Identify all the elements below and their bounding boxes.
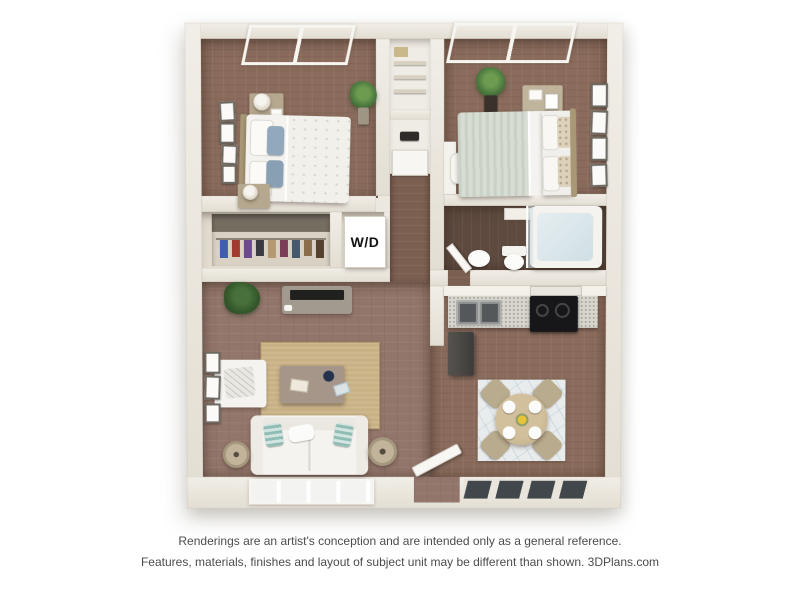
picture-frame [222,165,237,184]
wall-bedroom2-left [430,39,444,270]
tv [290,290,344,300]
closet-shelf [394,61,426,65]
wall-left [185,23,203,509]
dining-window-frame [464,479,589,501]
floor-lamp [223,441,250,468]
bed [457,108,577,198]
floor-plan: W/D [185,23,624,509]
table-centerpiece [518,415,527,424]
picture-frame [205,403,221,423]
sofa-arm [251,415,263,474]
refrigerator [448,332,474,376]
sofa-pillow-teal [263,422,284,447]
corner-plant [224,282,260,314]
table-lamp [253,93,270,110]
picture-frame [219,101,236,122]
picture-frame [221,144,238,165]
shower-glass [526,206,533,268]
burner [555,303,570,318]
hanging-clothes [256,240,264,256]
page: W/D Renderings are an artist's conceptio… [0,0,800,600]
wall-closet-bottom [202,268,390,282]
disclaimer-line1: Renderings are an artist's conception an… [0,531,800,552]
sink-basin [458,302,478,324]
burner [536,304,549,317]
duvet [457,111,530,197]
bathtub-basin [537,213,593,261]
shelf-object [400,132,419,141]
duvet [285,115,351,203]
bathroom-sink [468,250,490,267]
plant-pot [358,107,369,124]
picture-frame [590,110,608,135]
console-decor [284,305,292,311]
entry-doorway-floor [414,477,460,503]
picture-frame [204,352,220,374]
armchair-pillow [223,366,256,399]
nightstand-decor [545,93,559,109]
dining-window-dark-panes [464,481,589,499]
hanging-clothes [220,240,228,258]
table-book [290,378,309,392]
wall-niche-divider [390,109,430,119]
bedroom-2-window [446,23,577,63]
closet [212,214,330,266]
wall-bedroom1-right [376,39,390,196]
hanging-clothes [268,240,276,258]
sink-basin [480,302,500,324]
plate [528,426,541,439]
closet-shelf-box [394,47,408,57]
hanging-clothes [304,240,312,256]
picture-frame [204,375,221,399]
table-vase [323,371,334,382]
wall-kitchen-stub [430,286,444,346]
hallway-floor [390,174,430,282]
hanging-clothes [280,240,288,257]
plate [529,401,542,414]
sofa-arm [356,415,368,474]
bedroom-1-window [241,25,356,65]
picture-frame [591,83,608,107]
floor-lamp [368,437,397,466]
closet-shelf [394,75,426,79]
hanging-clothes [232,240,240,257]
picture-frame [590,137,607,161]
living-room-window [249,479,374,505]
headboard [570,108,577,197]
washer-dryer-box: W/D [344,216,386,268]
picture-frame [219,123,235,144]
potted-plant [476,67,505,96]
wall-bathroom-bottom-left [430,270,448,286]
plate [503,426,516,439]
hanging-clothes [316,240,324,258]
potted-plant [350,81,377,108]
closet-shelf [394,89,426,93]
range-hood [530,286,582,296]
plate [503,401,516,414]
accent-pillow [267,126,285,156]
hanging-clothes [292,240,300,258]
hallway-door [392,150,428,176]
hanging-clothes [244,240,252,258]
wall-closet-partition [330,212,342,268]
disclaimer: Renderings are an artist's conception an… [0,531,800,573]
disclaimer-line2: Features, materials, finishes and layout… [0,552,800,573]
picture-frame [590,164,608,188]
toilet [504,254,524,270]
washer-dryer-label: W/D [351,234,380,250]
nightstand-decor [528,89,542,100]
wall-bathroom-bottom [470,270,606,286]
table-lamp [243,185,258,200]
sofa [251,415,369,474]
